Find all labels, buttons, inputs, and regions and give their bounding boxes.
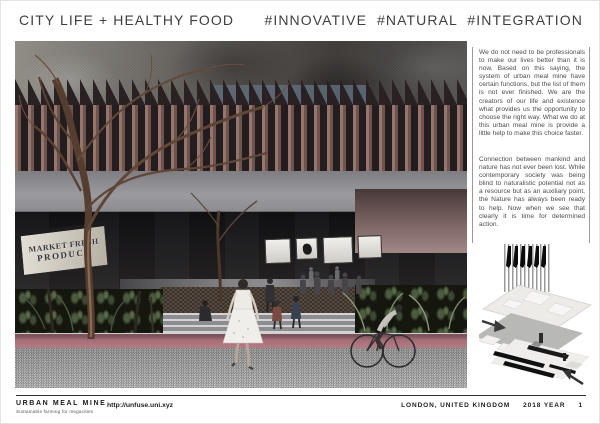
year-text: 2018 YEAR [523, 402, 565, 409]
presentation-board: CITY LIFE + HEALTHY FOOD #INNOVATIVE #NA… [0, 0, 600, 424]
location-text: LONDON, UNITED KINGDOM [401, 402, 510, 409]
nature-paragraph: Connection between mankind and nature ha… [479, 156, 585, 229]
sidebar-rule-right [589, 47, 590, 243]
scene-figures [15, 41, 467, 388]
board-hashtags: #INNOVATIVE #NATURAL #INTEGRATION [264, 12, 583, 28]
intro-paragraph: We do not need to be professionals to ma… [479, 49, 585, 138]
footer-divider [16, 395, 586, 396]
brand-name: URBAN MEAL MINE [16, 400, 106, 407]
page-number: 1 [578, 402, 583, 409]
architectural-render: MARKET FRESH PRODUCE [15, 41, 467, 388]
brand-tagline: Sustainable farming for megacities [16, 409, 93, 414]
sidebar-rule-left [472, 47, 473, 243]
board-title: CITY LIFE + HEALTHY FOOD [19, 12, 234, 28]
location-info: LONDON, UNITED KINGDOM 2018 YEAR 1 [401, 402, 583, 409]
project-url: http://unfuse.uni.xyz [107, 402, 173, 409]
exploded-axonometric-diagram [479, 283, 597, 389]
